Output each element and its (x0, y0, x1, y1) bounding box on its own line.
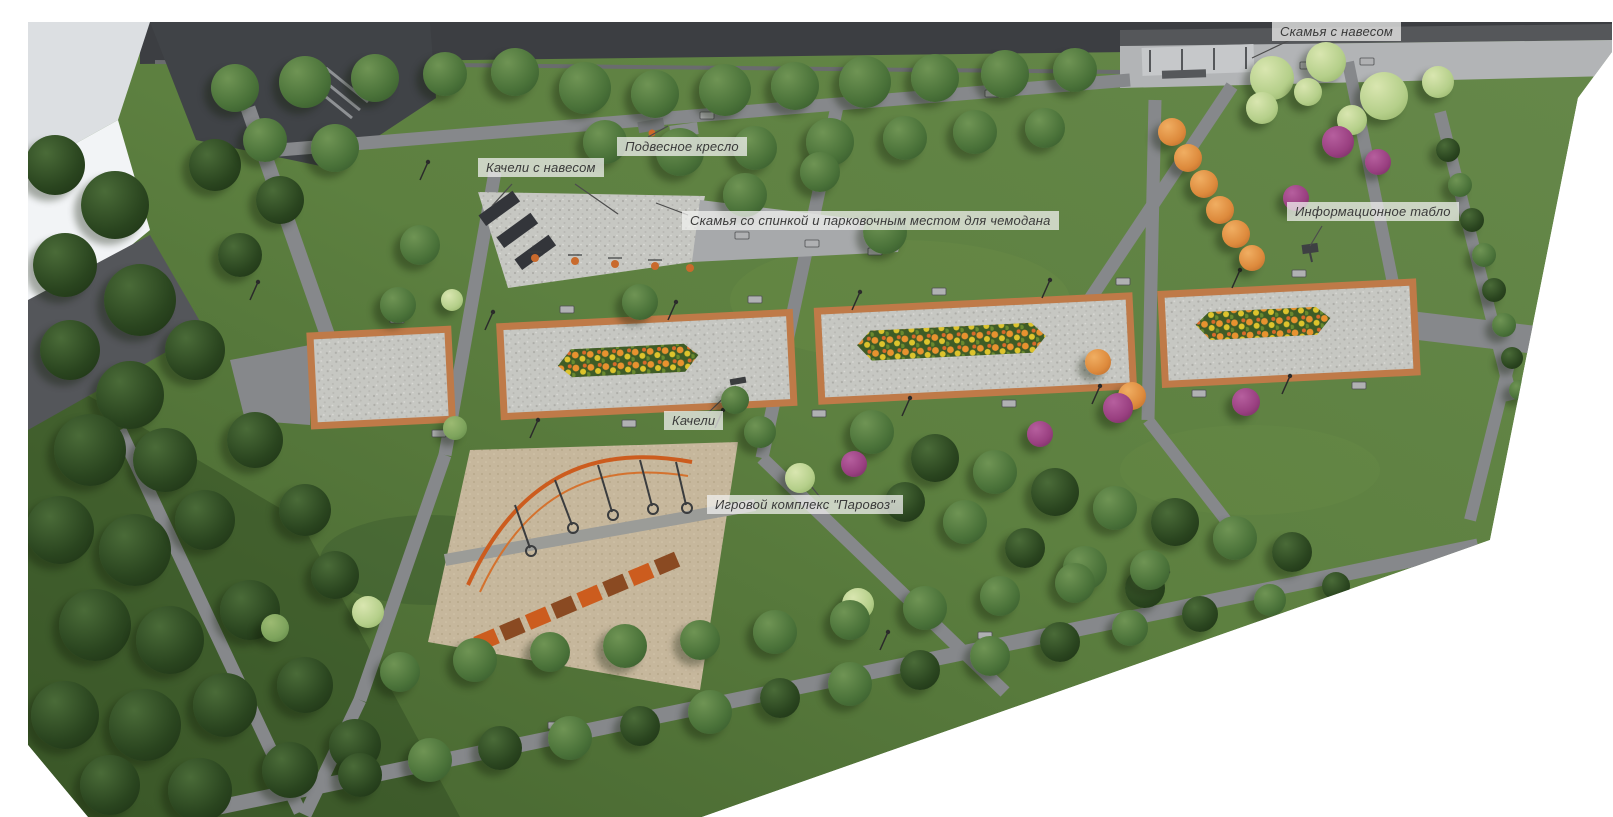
label-swings-with-canopy: Качели с навесом (478, 158, 604, 177)
label-info-board: Информационное табло (1287, 202, 1459, 221)
label-bench-with-canopy: Скамья с навесом (1272, 22, 1401, 41)
park-plan-render: Скамья с навесом Подвесное кресло Качели… (0, 0, 1613, 817)
label-bench-with-backrest: Скамья со спинкой и парковочным местом д… (682, 211, 1059, 230)
render-layer (0, 0, 1613, 817)
label-play-complex: Игровой комплекс "Паровоз" (707, 495, 903, 514)
label-hanging-chair: Подвесное кресло (617, 137, 747, 156)
label-swings: Качели (664, 411, 723, 430)
